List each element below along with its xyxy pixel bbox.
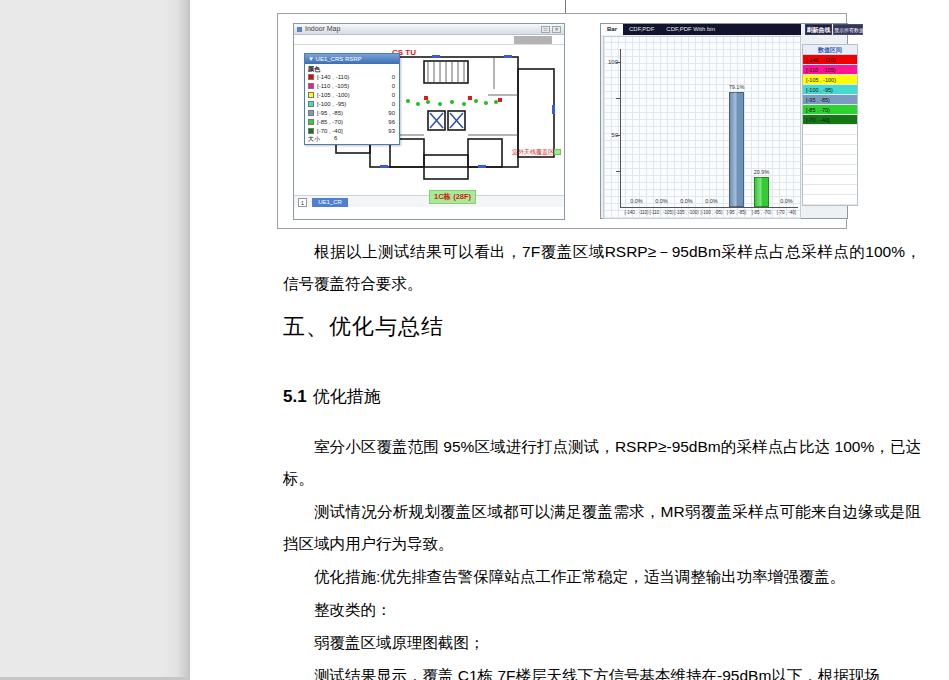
legend-range: [-70 , -40] [317, 128, 388, 134]
chart-tab-cdf-pdf[interactable]: CDF,PDF [623, 24, 660, 35]
x-category-label: [-140 , -110) [624, 210, 650, 215]
rsrp-legend[interactable]: ▼ UE1_CRS RSRP 颜色 [-140 , -110)0[-110 , … [304, 53, 400, 145]
refresh-curves-button[interactable]: 刷新曲线 [805, 24, 832, 35]
chart-legend-empty-row [803, 165, 857, 175]
indoor-map-window: Indoor Map □ ✕ CS TU [293, 23, 565, 220]
bar-value-label: 0.0% [624, 198, 650, 204]
legend-range: [-100 , -95) [317, 101, 392, 107]
selection-guide-line [565, 0, 566, 14]
y-tick-mark [616, 135, 620, 136]
legend-count: 0 [392, 92, 395, 98]
y-tick-mark [616, 98, 620, 99]
legend-row: [-105 , -100)0 [305, 90, 399, 99]
subsection-heading: 5.1优化措施 [283, 385, 381, 408]
legend-range: [-105 , -100) [317, 92, 392, 98]
x-category-label: [-100 , -95) [699, 210, 725, 215]
chart-legend-empty-row [803, 125, 857, 135]
indoor-legend-rows: [-140 , -110)0[-110 , -105)0[-105 , -100… [305, 72, 399, 135]
legend-row: [-95 , -85)90 [305, 108, 399, 117]
indoor-map-titlebar[interactable]: Indoor Map □ ✕ [294, 24, 564, 35]
indoor-map-toolbar [294, 35, 564, 45]
legend-size-value: 6 [334, 135, 337, 144]
x-axis [620, 207, 798, 208]
legend-swatch [308, 119, 314, 125]
left-margin-panel [0, 0, 190, 680]
legend-count: 0 [392, 101, 395, 107]
bar-value-label: 79.1% [724, 84, 750, 90]
paragraph-rectify: 整改类的： [283, 594, 921, 626]
bar-value-label: 0.0% [674, 198, 700, 204]
legend-row: [-100 , -95)0 [305, 99, 399, 108]
chart-legend-empty-row [803, 135, 857, 145]
legend-row: [-140 , -110)0 [305, 72, 399, 81]
subsection-title: 优化措施 [313, 387, 381, 406]
legend-count: 96 [388, 119, 395, 125]
bar-value-label: 20.9% [749, 169, 775, 175]
chart-legend-row: [-95 , -85) [803, 95, 857, 105]
legend-count: 0 [392, 83, 395, 89]
chart-tab-cdf-pdf-with-bin[interactable]: CDF,PDF With bin [660, 24, 721, 35]
bar-value-label: 0.0% [774, 198, 800, 204]
window-icon [297, 27, 302, 32]
chart-legend-header: 数值区间 [803, 45, 857, 55]
legend-range: [-140 , -110) [317, 74, 392, 80]
chart-legend-rows: [-140 , -110)[-110 , -105)[-105 , -100)[… [803, 55, 857, 205]
chart-legend-row: [-140 , -110) [803, 55, 857, 65]
legend-range: [-85 , -70) [317, 119, 388, 125]
legend-swatch [308, 83, 314, 89]
chart-legend-empty-row [803, 195, 857, 205]
chart-legend-empty-row [803, 155, 857, 165]
chart-legend: 数值区间 [-140 , -110)[-110 , -105)[-105 , -… [802, 44, 858, 206]
x-category-label: [-110 , -105) [649, 210, 675, 215]
paragraph-test-result: 根据以上测试结果可以看出，7F覆盖区域RSRP≥－95dBm采样点占总采样点的1… [283, 236, 921, 300]
map-sheet-tab[interactable]: UE1_CR [312, 198, 348, 207]
show-all-data-button[interactable]: 显示所有数据 [833, 24, 863, 35]
paragraph-measures: 优化措施:优先排查告警保障站点工作正常稳定，适当调整输出功率增强覆盖。 [283, 561, 921, 593]
y-tick-mark [616, 62, 620, 63]
chart-legend-row: [-105 , -100) [803, 75, 857, 85]
bar-value-label: 0.0% [649, 198, 675, 204]
rsrp-legend-title[interactable]: ▼ UE1_CRS RSRP [305, 54, 399, 64]
document-canvas: Indoor Map □ ✕ CS TU [0, 0, 949, 680]
legend-row: [-70 , -40]93 [305, 126, 399, 135]
legend-count: 93 [388, 128, 395, 134]
legend-range: [-110 , -105) [317, 83, 392, 89]
x-category-label: [-95 , -85) [724, 210, 750, 215]
chart-legend-empty-row [803, 185, 857, 195]
legend-size-row: 大小 6 [305, 135, 399, 144]
green-highlight-box [554, 149, 561, 155]
rsrp-bar-chart-panel: BarCDF,PDFCDF,PDF With bin 刷新曲线 显示所有数据 1… [600, 23, 848, 219]
building-label: 1C栋 (28F) [429, 190, 476, 204]
legend-count: 0 [392, 74, 395, 80]
paragraph-test-display: 测试结果显示，覆盖 C1栋 7F楼层天线下方信号基本维持在-95dBm以下，根据… [283, 660, 921, 680]
bar [729, 92, 744, 207]
chart-legend-row: [-85 , -70) [803, 105, 857, 115]
legend-row: [-110 , -105)0 [305, 81, 399, 90]
restore-icon[interactable]: □ [541, 26, 550, 33]
legend-swatch [308, 92, 314, 98]
close-icon[interactable]: ✕ [552, 26, 561, 33]
subsection-number: 5.1 [283, 387, 307, 406]
indoor-map-canvas[interactable]: CS TU [294, 45, 564, 207]
legend-size-label: 大小 [308, 135, 320, 144]
legend-swatch [308, 101, 314, 107]
paragraph-weak-coverage: 弱覆盖区域原理图截图； [283, 627, 921, 659]
chart-legend-row: [-110 , -105) [803, 65, 857, 75]
bar [754, 177, 769, 207]
x-category-label: [-85 , -70) [749, 210, 775, 215]
legend-swatch [308, 74, 314, 80]
outdoor-antenna-note: 室外天线覆盖区 [512, 148, 561, 157]
chart-tabbar: BarCDF,PDFCDF,PDF With bin [601, 24, 801, 35]
chart-legend-empty-row [803, 145, 857, 155]
legend-color-header: 颜色 [305, 64, 399, 72]
bar-value-label: 0.0% [699, 198, 725, 204]
x-category-label: [-105 , -100) [674, 210, 700, 215]
y-axis [620, 49, 621, 208]
legend-row: [-85 , -70)96 [305, 117, 399, 126]
chart-legend-row: [-100 , -95) [803, 85, 857, 95]
y-tick-mark [616, 171, 620, 172]
legend-swatch [308, 128, 314, 134]
chart-legend-row: [-70 , -40] [803, 115, 857, 125]
paragraph-coverage: 室分小区覆盖范围 95%区域进行打点测试，RSRP≥-95dBm的采样点占比达 … [283, 431, 921, 495]
section-heading: 五、优化与总结 [283, 312, 444, 342]
legend-count: 90 [388, 110, 395, 116]
legend-range: [-95 , -85) [317, 110, 388, 116]
plot-area: 100500.0%[-140 , -110)0.0%[-110 , -105)0… [603, 36, 801, 219]
chart-legend-empty-row [803, 175, 857, 185]
window-title: Indoor Map [305, 25, 340, 32]
embedded-figure[interactable]: Indoor Map □ ✕ CS TU [277, 13, 847, 229]
map-page-number[interactable]: 1 [298, 198, 307, 207]
paragraph-analysis: 测试情况分析规划覆盖区域都可以满足覆盖需求，MR弱覆盖采样点可能来自边缘或是阻挡… [283, 496, 921, 560]
legend-swatch [308, 110, 314, 116]
toolbar-box[interactable] [514, 36, 552, 44]
chart-tab-bar[interactable]: Bar [601, 24, 623, 35]
x-category-label: [-70 , -40] [774, 210, 800, 215]
